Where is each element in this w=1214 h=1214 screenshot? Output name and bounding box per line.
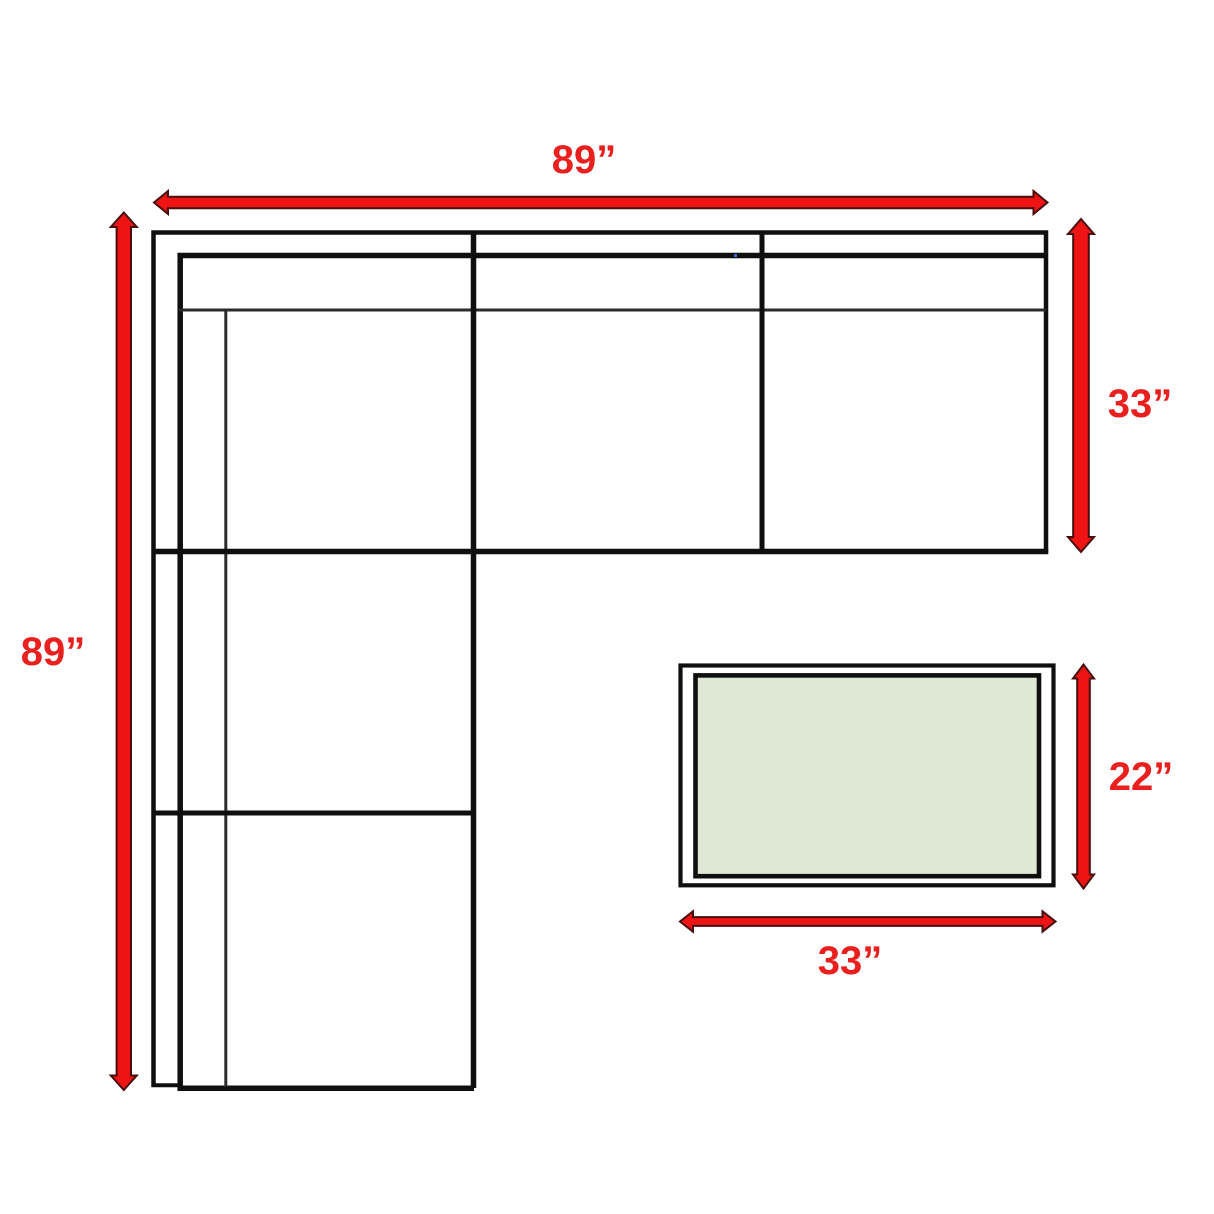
svg-text:89”: 89” — [552, 138, 617, 182]
svg-text:33”: 33” — [1108, 382, 1173, 426]
svg-text:89”: 89” — [21, 630, 86, 674]
svg-text:33”: 33” — [818, 939, 883, 983]
svg-text:22”: 22” — [1109, 755, 1174, 799]
